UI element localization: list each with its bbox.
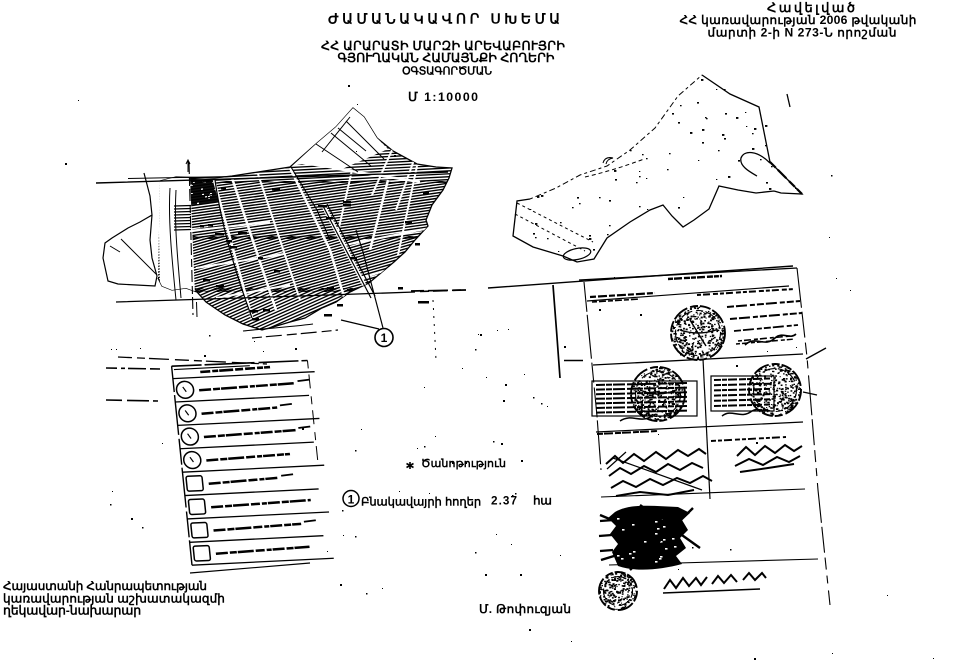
svg-text:ԺԱՄԱՆԱԿԱՎՈՐ ՍԽԵՄԱ: ԺԱՄԱՆԱԿԱՎՈՐ ՍԽԵՄԱ [328,11,560,27]
svg-text:ՕԳՏԱԳՈՐԾՄԱՆ: ՕԳՏԱԳՈՐԾՄԱՆ [402,66,492,78]
svg-text:1: 1 [348,493,355,507]
svg-text:ԳՅՈՒՂԱԿԱՆ ՀԱՄԱՅՆՔԻ ՀՈՂԵՐԻ: ԳՅՈՒՂԱԿԱՆ ՀԱՄԱՅՆՔԻ ՀՈՂԵՐԻ [338,51,555,65]
svg-text:հա: հա [533,494,552,508]
svg-text:1: 1 [381,331,388,345]
svg-text:Մ 1:10000: Մ 1:10000 [408,90,478,104]
svg-text:ղեկավար-նախարար: ղեկավար-նախարար [3,604,141,618]
svg-text:Բնակավայրի հողեր: Բնակավայրի հողեր [361,496,481,509]
svg-text:մարտի 2-ի N 273-Ն որոշման: մարտի 2-ի N 273-Ն որոշման [708,26,897,40]
svg-text:Մ. Թոփուզյան: Մ. Թոփուզյան [479,602,571,616]
svg-text:Ծանոթություն: Ծանոթություն [421,458,506,470]
